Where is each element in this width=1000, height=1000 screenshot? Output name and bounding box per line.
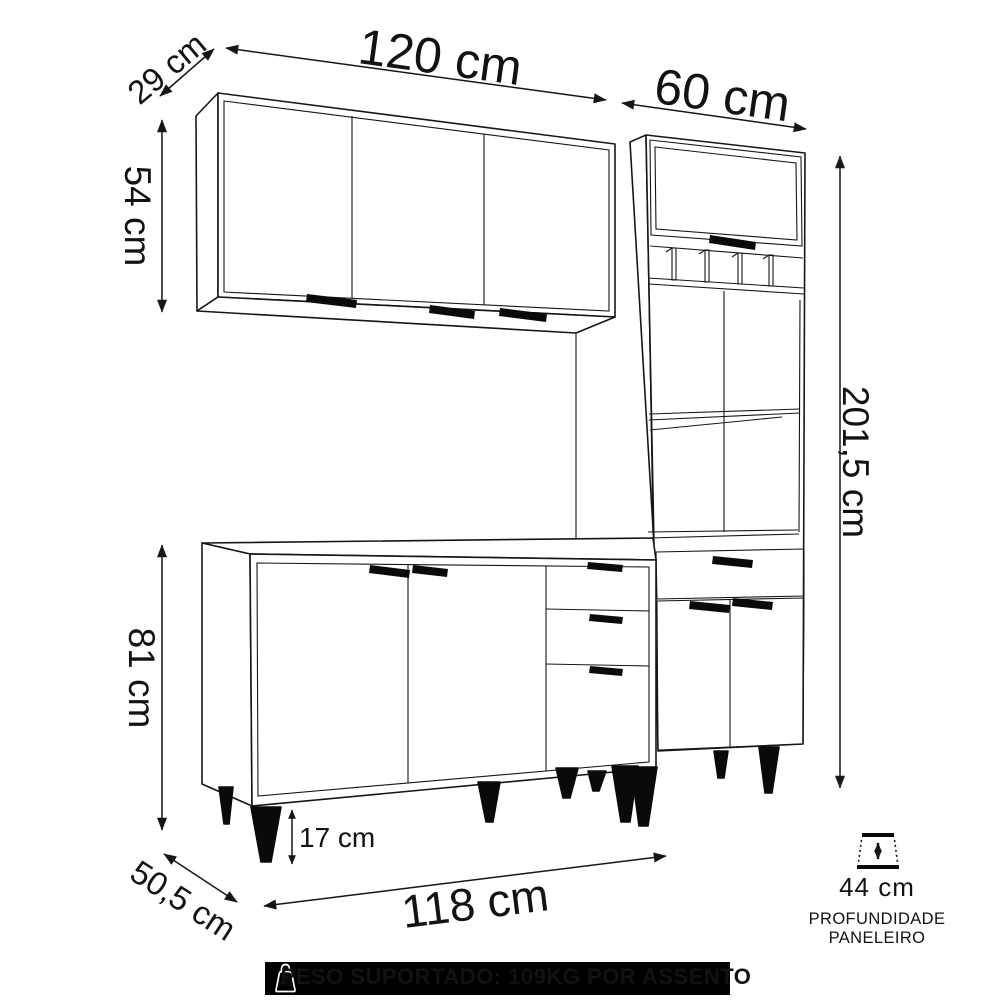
counter-right-small-leg xyxy=(588,771,606,791)
wall-height-label: 54 cm xyxy=(117,166,158,267)
depth-arrow-icon xyxy=(857,835,899,867)
wall-cabinet xyxy=(196,93,615,333)
dimension-leg-height: 17 cm xyxy=(292,810,375,864)
pantry-depth-caption-line1: PROFUNDIDADE xyxy=(809,910,946,928)
dimension-pantry-width: 60 cm xyxy=(622,58,806,132)
pantry-front-right-leg xyxy=(759,747,779,793)
dimension-counter-width: 118 cm xyxy=(264,856,666,938)
counter-height-label: 81 cm xyxy=(121,628,162,729)
weight-banner: KG PESO SUPORTADO: 109KG POR ASSENTO xyxy=(265,962,751,995)
total-height-label: 201,5 cm xyxy=(835,386,876,538)
counter-cabinet xyxy=(202,538,657,862)
wall-depth-label: 29 cm xyxy=(120,25,213,111)
dimension-wall-height: 54 cm xyxy=(117,120,162,312)
counter-width-label: 118 cm xyxy=(399,868,552,938)
wall-cabinet-front xyxy=(218,93,615,317)
dimension-wall-width: 120 cm xyxy=(226,18,606,100)
leg-height-label: 17 cm xyxy=(299,822,375,853)
dimension-counter-height: 81 cm xyxy=(121,545,162,830)
counter-right-front-leg-b xyxy=(631,767,657,826)
wall-cabinet-side-panel xyxy=(196,93,218,311)
pantry-shelf-depth-label: 44 cm xyxy=(839,872,915,902)
counter-right-back-leg xyxy=(556,768,578,798)
pantry-depth-note: 44 cm PROFUNDIDADE PANELEIRO xyxy=(809,835,946,947)
counter-back-left-leg xyxy=(219,787,233,824)
dimension-total-height: 201,5 cm xyxy=(835,156,876,788)
dimension-counter-depth: 50,5 cm xyxy=(124,853,243,948)
wall-width-label: 120 cm xyxy=(355,18,525,96)
diagram-canvas: 29 cm 120 cm 60 cm 54 cm 201,5 cm 81 cm … xyxy=(0,0,1000,1000)
depth-icon-left-dotted xyxy=(859,840,862,862)
kitchen-set-dimension-diagram: 29 cm 120 cm 60 cm 54 cm 201,5 cm 81 cm … xyxy=(0,0,1000,1000)
pantry-depth-caption-line2: PANELEIRO xyxy=(829,929,926,947)
dimension-wall-depth: 29 cm xyxy=(120,25,214,111)
pantry-width-label: 60 cm xyxy=(651,58,794,132)
depth-icon-right-dotted xyxy=(895,840,898,862)
counter-front-left-leg xyxy=(251,807,281,862)
counter-side-panel xyxy=(202,543,252,806)
pantry-front-left-leg xyxy=(714,751,728,778)
counter-front xyxy=(250,554,656,806)
pantry-front xyxy=(646,135,805,751)
weight-banner-text: PESO SUPORTADO: 109KG POR ASSENTO xyxy=(281,964,752,989)
counter-middle-leg xyxy=(478,782,500,822)
